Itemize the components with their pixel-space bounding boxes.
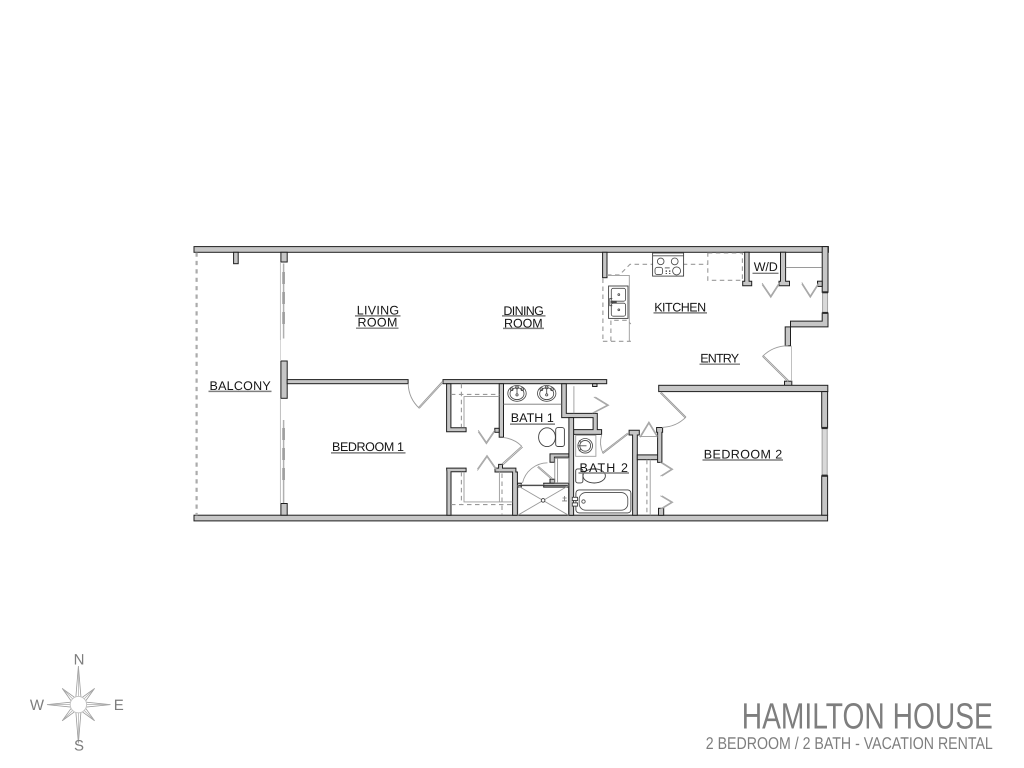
svg-text:2 BEDROOM / 2 BATH - VACATION: 2 BEDROOM / 2 BATH - VACATION RENTAL bbox=[706, 734, 993, 753]
svg-text:BATH 1: BATH 1 bbox=[511, 411, 554, 425]
svg-text:S: S bbox=[74, 738, 84, 755]
svg-text:BEDROOM 1: BEDROOM 1 bbox=[332, 440, 404, 454]
svg-text:ENTRY: ENTRY bbox=[700, 352, 739, 366]
svg-text:N: N bbox=[74, 652, 85, 669]
svg-text:HAMILTON HOUSE: HAMILTON HOUSE bbox=[742, 696, 993, 737]
svg-text:W: W bbox=[30, 697, 45, 714]
svg-text:E: E bbox=[114, 697, 124, 714]
svg-text:W/D: W/D bbox=[754, 260, 778, 274]
